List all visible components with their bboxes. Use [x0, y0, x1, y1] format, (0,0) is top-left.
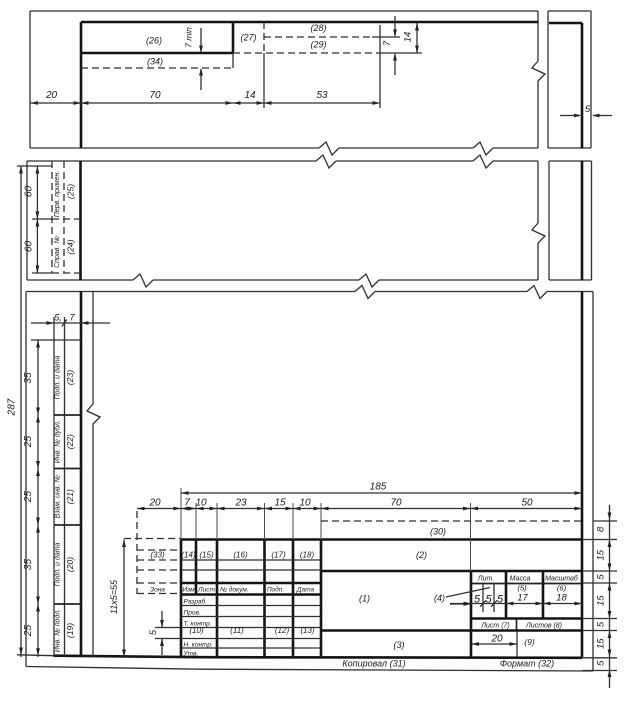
svg-text:Лит.: Лит. [477, 576, 494, 583]
svg-text:15: 15 [596, 549, 607, 560]
svg-text:Копировал (31): Копировал (31) [342, 659, 405, 669]
svg-text:20: 20 [148, 498, 161, 509]
svg-text:15: 15 [596, 595, 607, 606]
svg-text:Пров.: Пров. [184, 610, 201, 617]
svg-text:(4): (4) [434, 593, 445, 603]
svg-text:(19): (19) [65, 623, 75, 638]
svg-text:(27): (27) [240, 33, 256, 43]
svg-text:Перв. примен.: Перв. примен. [54, 171, 61, 218]
svg-text:(21): (21) [65, 489, 75, 504]
svg-text:Лист: Лист [197, 587, 215, 594]
svg-text:Н. контр.: Н. контр. [184, 642, 214, 649]
svg-text:35: 35 [23, 372, 34, 384]
svg-text:60: 60 [24, 186, 35, 198]
svg-text:(9): (9) [524, 637, 535, 647]
svg-text:(1): (1) [359, 594, 370, 604]
svg-text:25: 25 [23, 491, 34, 504]
svg-text:Масса: Масса [510, 576, 531, 583]
svg-text:5: 5 [485, 594, 492, 606]
svg-text:23: 23 [234, 498, 247, 509]
svg-text:14: 14 [403, 32, 414, 43]
svg-text:287: 287 [7, 398, 18, 416]
svg-text:№ докум.: № докум. [220, 586, 249, 594]
svg-text:Зона: Зона [150, 587, 165, 594]
svg-text:Формат (32): Формат (32) [500, 659, 554, 669]
svg-text:(22): (22) [65, 434, 75, 449]
svg-text:(6): (6) [557, 584, 567, 593]
svg-text:Подп.: Подп. [267, 586, 284, 594]
svg-text:8: 8 [596, 526, 607, 532]
svg-text:(17): (17) [271, 551, 286, 560]
svg-text:Справ. №: Справ. № [54, 236, 61, 268]
svg-text:5: 5 [148, 629, 159, 635]
svg-text:Инв. № подл.: Инв. № подл. [54, 609, 62, 652]
svg-text:5: 5 [585, 104, 591, 115]
svg-text:Дата: Дата [296, 587, 315, 594]
svg-text:70: 70 [390, 498, 402, 509]
svg-text:70: 70 [149, 90, 161, 101]
svg-text:17: 17 [517, 593, 528, 604]
svg-text:(13): (13) [300, 626, 315, 635]
svg-text:25: 25 [23, 625, 34, 638]
svg-text:Масштаб: Масштаб [545, 575, 579, 583]
svg-text:Подп. и дата: Подп. и дата [54, 355, 62, 399]
svg-text:(33): (33) [150, 551, 165, 560]
svg-text:Инв. № дубл.: Инв. № дубл. [54, 420, 62, 463]
svg-text:(26): (26) [146, 36, 162, 46]
svg-text:(10): (10) [189, 626, 204, 635]
svg-text:20: 20 [45, 90, 58, 101]
svg-text:(5): (5) [517, 584, 527, 593]
svg-text:5,: 5, [54, 313, 62, 323]
svg-text:(34): (34) [147, 57, 163, 67]
svg-text:(11): (11) [230, 626, 244, 635]
svg-text:(2): (2) [416, 550, 427, 560]
svg-text:(18): (18) [300, 551, 315, 560]
svg-text:(29): (29) [310, 40, 326, 50]
svg-text:(12): (12) [275, 626, 290, 635]
svg-text:10: 10 [195, 498, 207, 509]
svg-text:Листов (8): Листов (8) [525, 623, 562, 630]
svg-text:15: 15 [596, 638, 607, 649]
svg-text:(24): (24) [66, 239, 76, 254]
svg-text:5: 5 [497, 594, 504, 606]
svg-text:5: 5 [596, 621, 607, 627]
svg-text:50: 50 [521, 498, 533, 509]
svg-text:Утв.: Утв. [183, 651, 199, 658]
svg-text:Подп. и дата: Подп. и дата [54, 542, 62, 586]
svg-text:7: 7 [382, 40, 393, 46]
svg-text:(14): (14) [181, 551, 196, 560]
svg-text:(3): (3) [394, 640, 405, 650]
svg-text:7: 7 [184, 498, 190, 509]
svg-text:35: 35 [23, 559, 34, 571]
svg-text:Лист (7): Лист (7) [480, 623, 510, 630]
svg-text:185: 185 [370, 482, 387, 493]
svg-text:Разраб.: Разраб. [184, 598, 208, 606]
svg-text:5: 5 [596, 660, 607, 666]
svg-text:(16): (16) [233, 551, 248, 560]
svg-text:Изм: Изм [182, 587, 195, 594]
svg-text:14: 14 [244, 90, 256, 101]
svg-text:(25): (25) [66, 184, 76, 199]
svg-text:11х5=55: 11х5=55 [109, 579, 119, 614]
svg-text:(30): (30) [430, 527, 446, 537]
svg-text:(15): (15) [199, 551, 214, 560]
svg-text:7 min: 7 min [184, 27, 194, 48]
svg-text:10: 10 [299, 498, 311, 509]
svg-text:(23): (23) [65, 370, 75, 385]
svg-text:(20): (20) [65, 557, 75, 572]
svg-text:53: 53 [316, 90, 328, 101]
svg-text:(28): (28) [310, 23, 326, 33]
svg-text:Взам. инв. №: Взам. инв. № [55, 475, 62, 519]
svg-text:5: 5 [596, 574, 607, 580]
svg-text:18: 18 [556, 593, 567, 604]
svg-text:15: 15 [274, 498, 286, 509]
svg-text:5: 5 [474, 594, 481, 606]
svg-text:25: 25 [23, 436, 34, 449]
svg-text:20: 20 [490, 634, 503, 645]
svg-text:60: 60 [24, 241, 35, 253]
